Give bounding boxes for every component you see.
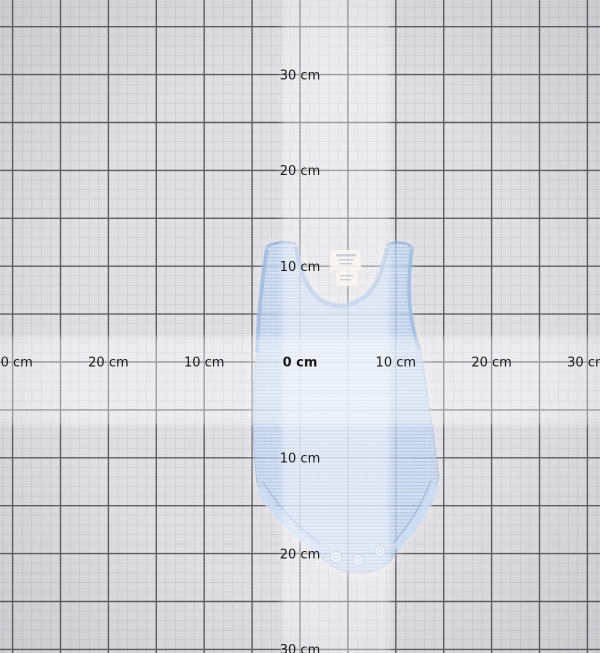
vignette-overlay [0, 0, 600, 653]
measurement-grid-scene: 30 cm20 cm10 cm0 cm10 cm20 cm30 cm30 cm2… [0, 0, 600, 653]
measurement-canvas: 30 cm20 cm10 cm0 cm10 cm20 cm30 cm30 cm2… [0, 0, 600, 653]
